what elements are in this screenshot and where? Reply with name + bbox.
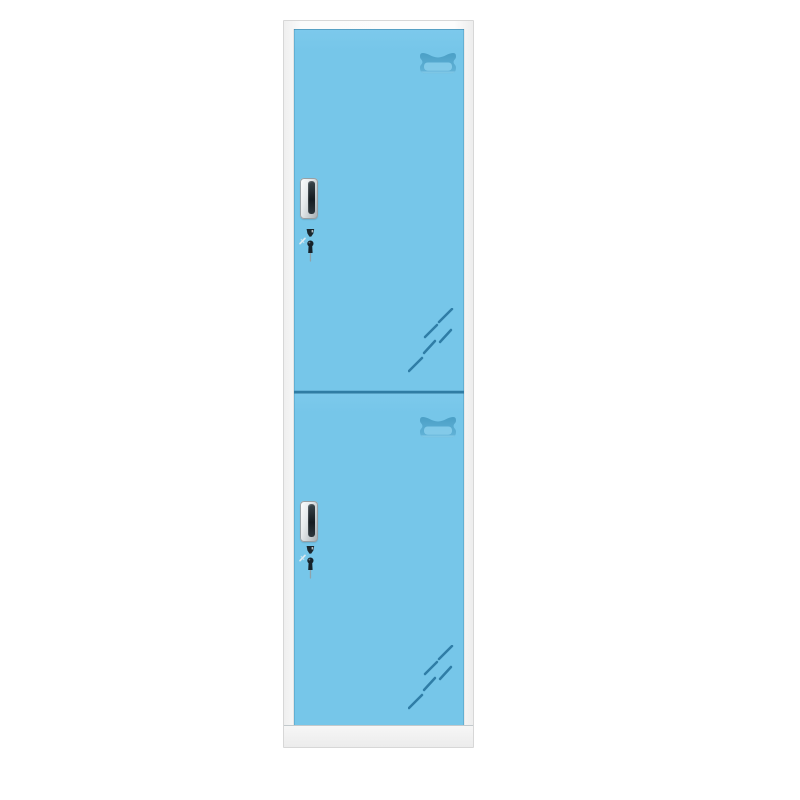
base-plinth <box>284 725 473 747</box>
upper-door <box>294 29 464 391</box>
shine-marks-icon <box>408 645 454 710</box>
lower-door <box>294 393 464 726</box>
vent-grille-icon <box>419 52 457 75</box>
handle-slot <box>308 181 315 214</box>
vent-grille-icon <box>419 416 457 439</box>
recessed-handle <box>300 501 318 542</box>
image-subject: Two-door vertical steel storage locker <box>0 0 1 1</box>
key-lock-icon <box>298 227 318 263</box>
door-column <box>294 29 464 726</box>
key-lock-icon <box>298 544 318 580</box>
recessed-handle <box>300 178 318 219</box>
product-image: Two-door vertical steel storage locker <box>0 0 800 800</box>
shine-marks-icon <box>408 308 454 373</box>
locker-cabinet <box>283 20 474 748</box>
handle-slot <box>308 504 315 537</box>
